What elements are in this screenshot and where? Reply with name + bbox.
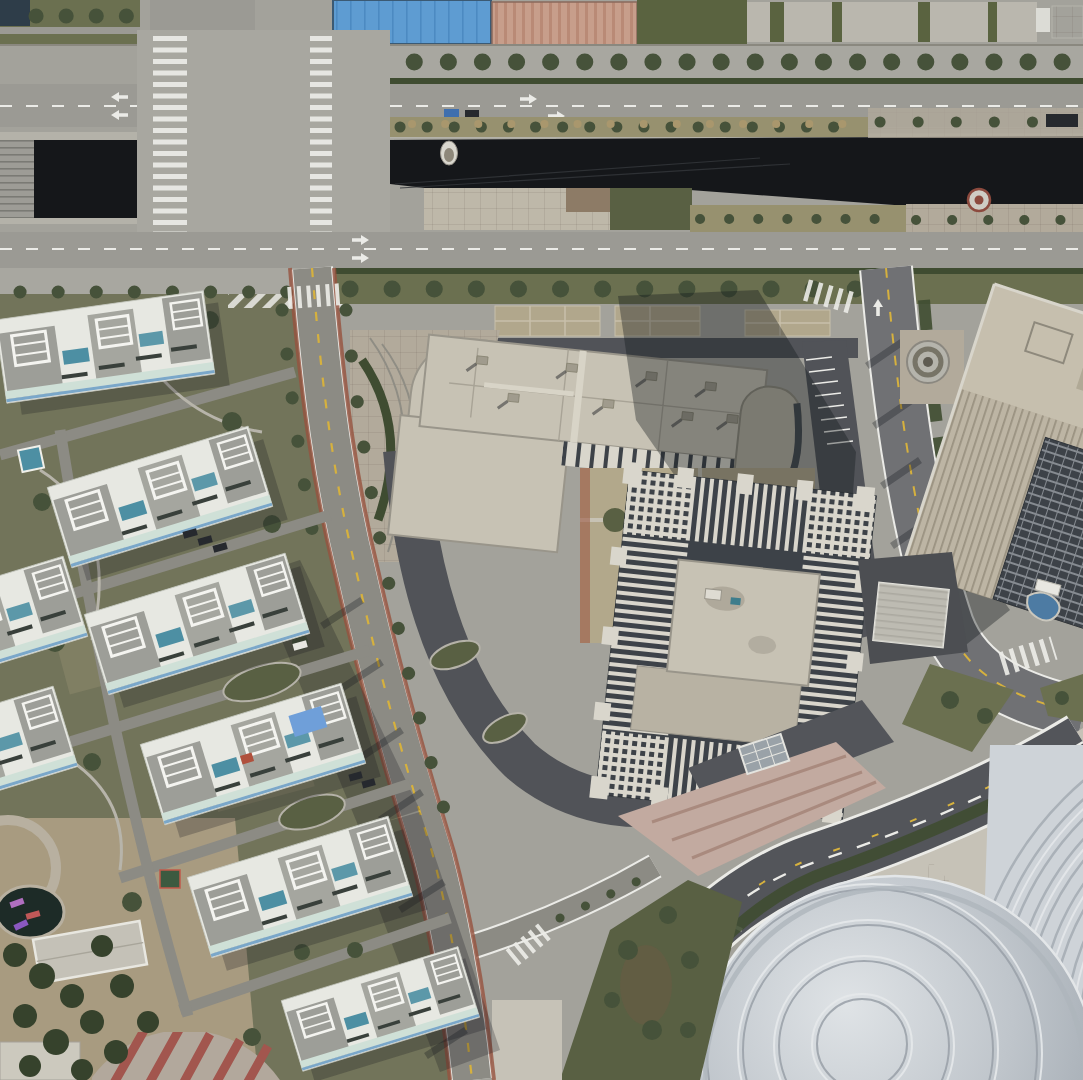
embankment	[0, 132, 137, 140]
gazebo	[18, 446, 44, 472]
green-bank	[610, 188, 692, 230]
aerial-image-canvas	[0, 0, 1083, 1080]
embankment	[0, 218, 137, 224]
red-corrugated-roof	[492, 2, 637, 45]
tile-strip	[580, 468, 590, 643]
dark-building-roof	[0, 0, 30, 26]
corner-building-roof	[0, 1042, 80, 1080]
tower-roof	[667, 560, 820, 686]
blue-car	[444, 109, 459, 117]
roof-vent	[730, 597, 741, 605]
roof-unit	[705, 589, 722, 601]
parked-cars	[1046, 114, 1078, 127]
hedge-strip	[333, 78, 1083, 84]
park-shed	[160, 870, 180, 888]
stepped-bank	[0, 140, 34, 218]
hedge-strip	[335, 268, 1083, 274]
footpath	[0, 27, 140, 34]
garage-ramp	[873, 583, 949, 648]
aerial-orthophoto	[0, 0, 1083, 1080]
wood-deck	[566, 188, 612, 212]
kiosk-top	[975, 196, 984, 205]
sports-court	[1052, 6, 1083, 38]
overgrown-lot	[637, 0, 747, 44]
bank-planting	[390, 117, 868, 137]
boat-deck	[444, 148, 454, 162]
small-white-building	[1036, 8, 1050, 32]
theater-west-walk	[492, 1000, 562, 1080]
round-feature-core	[923, 357, 933, 367]
park-pond	[0, 886, 64, 938]
